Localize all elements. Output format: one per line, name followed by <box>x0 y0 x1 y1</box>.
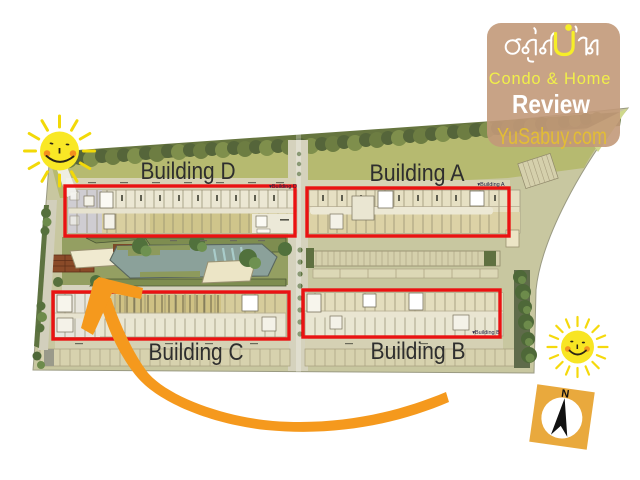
svg-text:▾Building A: ▾Building A <box>477 182 505 188</box>
svg-text:Building C: Building C <box>149 339 244 366</box>
svg-text:▾Building B: ▾Building B <box>472 330 500 336</box>
svg-text:Building B: Building B <box>371 338 466 365</box>
svg-text:▾Building D: ▾Building D <box>269 184 297 190</box>
svg-text:N: N <box>560 388 570 401</box>
svg-text:Condo & Home: Condo & Home <box>489 70 611 88</box>
svg-text:YuSabuy.com: YuSabuy.com <box>497 123 607 149</box>
svg-text:Building D: Building D <box>141 158 236 185</box>
svg-text:Review: Review <box>512 89 591 119</box>
svg-text:Building A: Building A <box>370 160 465 187</box>
